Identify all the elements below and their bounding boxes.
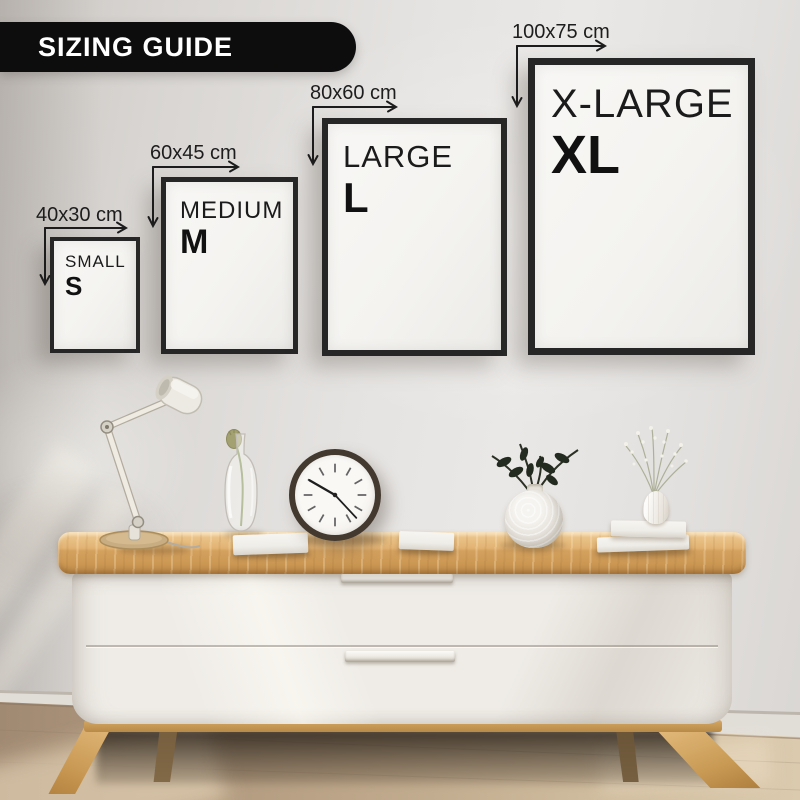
sideboard-body (72, 572, 732, 724)
sideboard-light-streak (162, 572, 402, 724)
banner-title: SIZING GUIDE (0, 32, 233, 63)
bubble-glass-vase (505, 490, 563, 548)
lamp-arm-lower (107, 427, 138, 522)
lamp-head (151, 371, 204, 418)
white-book (233, 533, 309, 556)
sizing-guide-banner: SIZING GUIDE (0, 22, 356, 72)
dimension-arrow-xlarge (510, 37, 615, 111)
clock-hand-short (309, 480, 335, 495)
dimension-arrow-large (306, 98, 406, 170)
drawer-handle-bottom (345, 651, 455, 662)
size-abbr-xlarge: XL (551, 127, 748, 184)
stacked-book-top (611, 520, 686, 537)
lamp-cable (166, 542, 200, 547)
clock-hand-long (335, 495, 356, 518)
desk-lamp (88, 368, 204, 560)
white-book (399, 531, 455, 551)
wall-clock (289, 449, 381, 541)
drawer-handle-top (341, 574, 453, 583)
dimension-arrow-medium (146, 158, 246, 232)
drawer-divider (86, 645, 718, 647)
dimension-arrow-small (38, 220, 133, 292)
sideboard-shade (432, 572, 732, 724)
size-abbr-large: L (343, 176, 501, 220)
lamp-arm-upper (107, 400, 170, 427)
white-vase (643, 491, 669, 524)
white-flowers (618, 422, 690, 498)
glass-bottle-vase (220, 426, 264, 538)
sizing-guide-scene: SIZING GUIDE SMALL S MEDIUM M LARGE L X-… (0, 0, 800, 800)
clock-face (295, 455, 375, 535)
lamp-base-joint (133, 517, 144, 528)
